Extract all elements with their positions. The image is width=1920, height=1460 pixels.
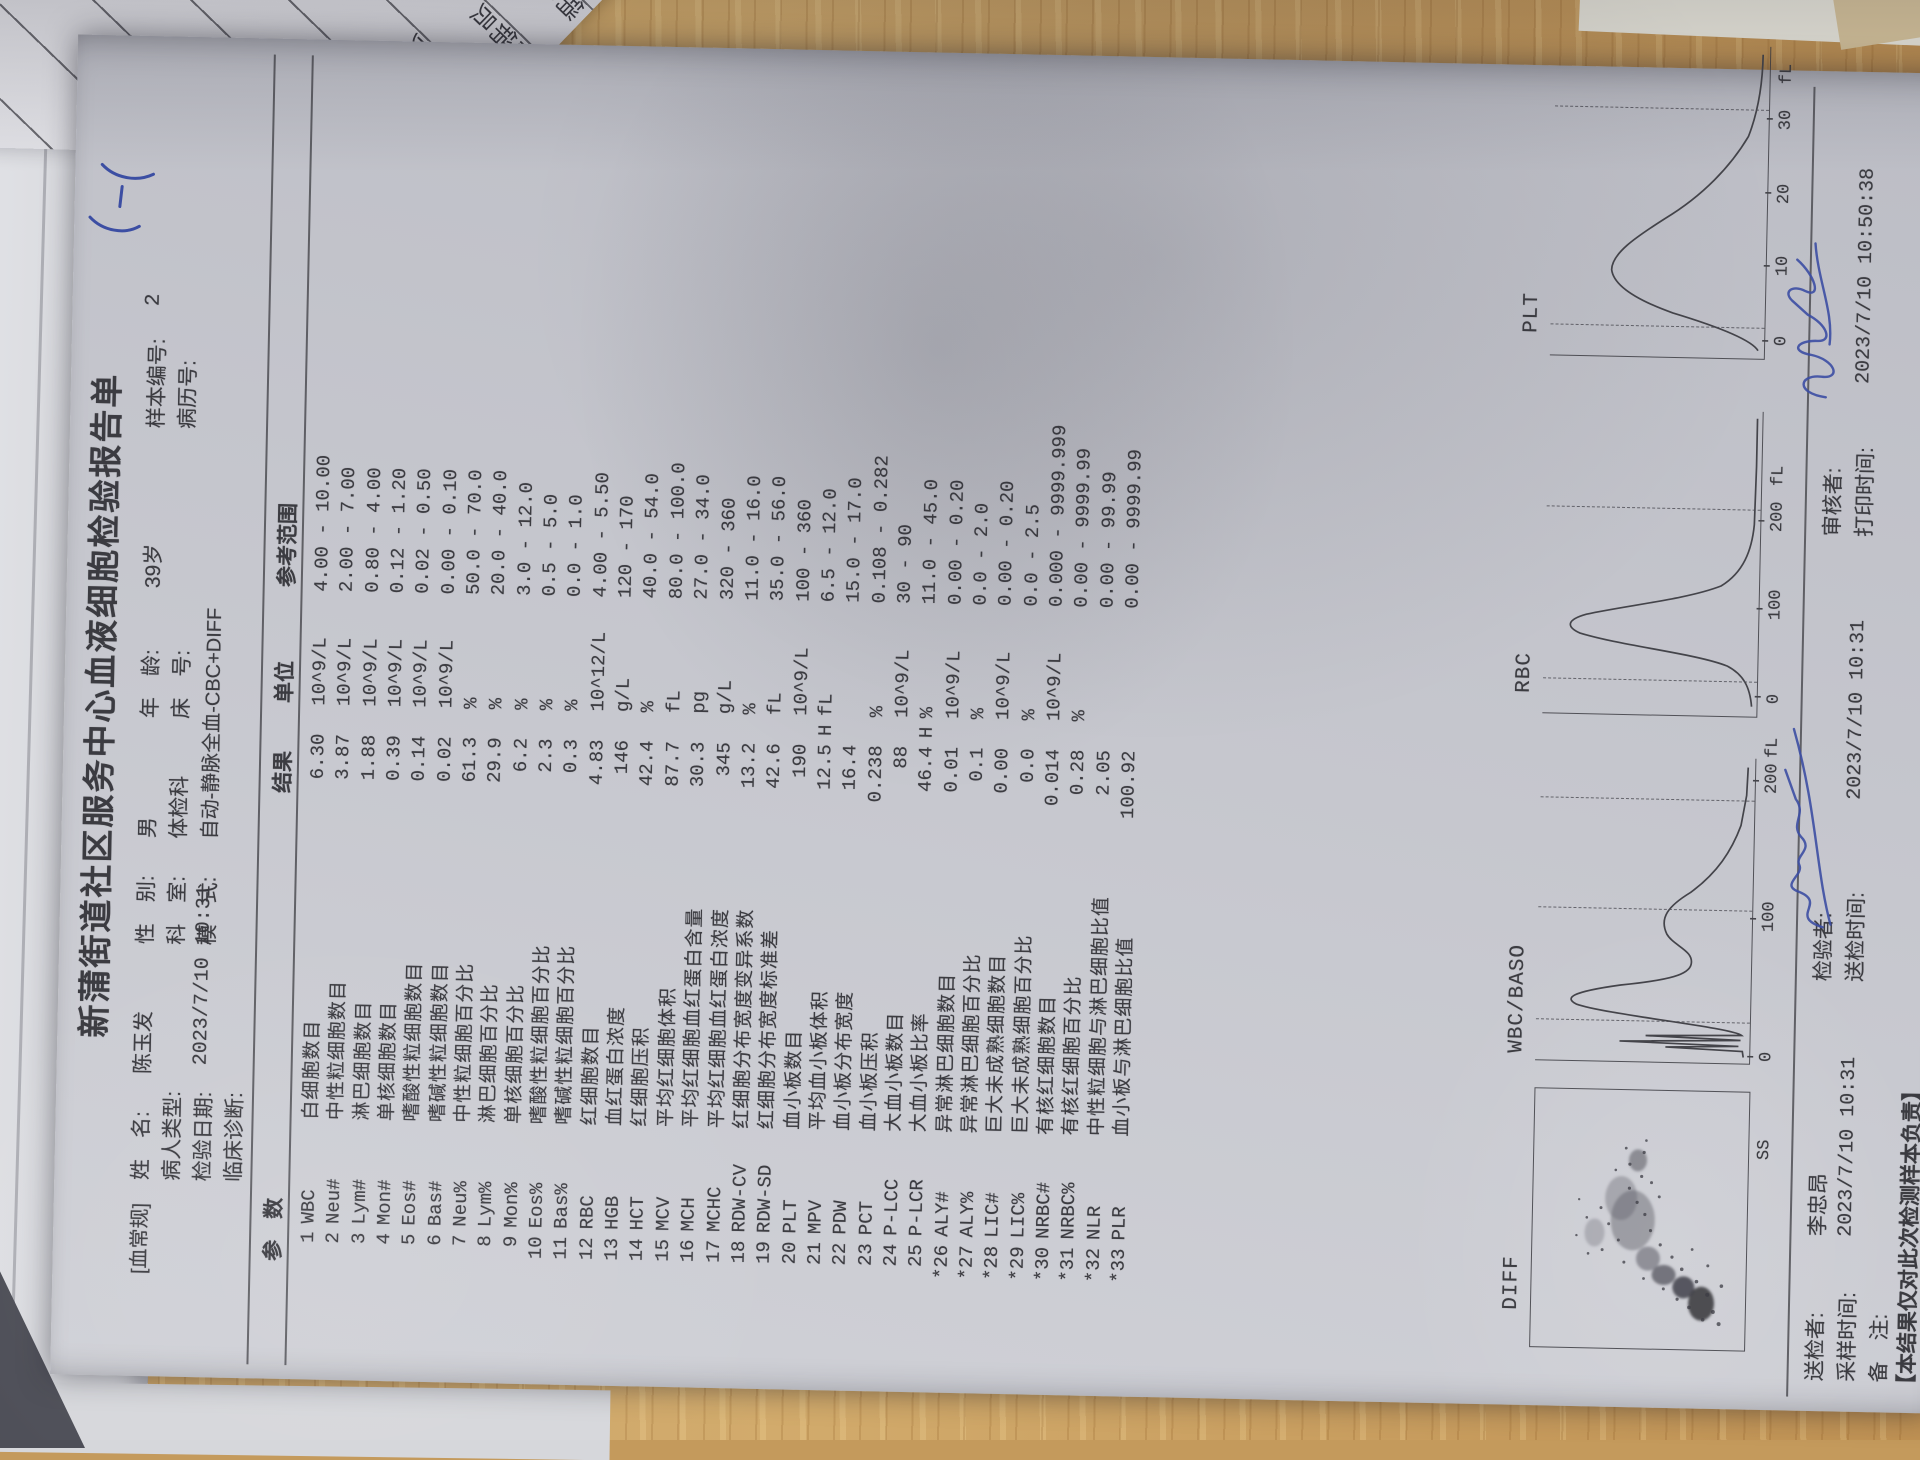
sender-label: 送检者:: [1798, 1312, 1829, 1381]
row-flag: [459, 709, 485, 738]
row-unit: g/L: [713, 600, 741, 715]
plt-histogram: [1550, 42, 1772, 359]
row-result: 16.4: [837, 745, 864, 846]
row-unit: g/L: [611, 598, 639, 713]
row-number: 11: [547, 1237, 575, 1385]
row-result: 0.00: [989, 748, 1016, 849]
row-result: 42.6: [761, 743, 788, 844]
category-tag: [血常规]: [122, 1203, 152, 1275]
axis-tick: 20: [1775, 184, 1794, 205]
row-unit: %: [865, 603, 893, 718]
name-value: 陈玉发: [126, 1011, 157, 1075]
row-flag: [1067, 721, 1093, 750]
row-flag: [712, 714, 738, 743]
row-code: PCT: [854, 1131, 882, 1244]
row-number: 25: [901, 1244, 929, 1392]
row-flag: [535, 710, 561, 739]
row-result: 6.30: [305, 733, 332, 834]
row-result: 46.4: [913, 746, 940, 847]
row-flag: [1092, 722, 1118, 751]
col-header-result: 结果: [266, 751, 297, 794]
row-unit: %: [459, 595, 487, 710]
rbc-plot-label: RBC: [1513, 652, 1537, 693]
dept-label: 科 室:: [160, 876, 191, 945]
reviewer-signature: [1768, 228, 1849, 414]
lab-report-paper: 新蒲街道社区服务中心血液细胞检验报告单 [血常规] 姓 名: 陈玉发 性 别: …: [62, 50, 1920, 1398]
row-unit: fL: [763, 601, 791, 716]
row-unit: %: [637, 598, 665, 713]
row-number: 8: [470, 1235, 498, 1383]
row-code: Lym#: [347, 1120, 375, 1233]
row-result: 3.87: [330, 734, 357, 835]
row-flag: [433, 708, 459, 737]
row-number: 7: [445, 1234, 473, 1382]
row-code: Neu#: [322, 1120, 350, 1233]
row-flag: [307, 705, 333, 734]
age-label: 年 龄:: [134, 649, 165, 718]
row-flag: H: [915, 718, 941, 747]
rule-under-header: [246, 55, 275, 1365]
row-result: 42.4: [634, 740, 661, 841]
row-unit: fL: [662, 599, 690, 714]
row-code: HGB: [600, 1126, 628, 1239]
row-unit: pg: [687, 599, 715, 714]
row-flag: [965, 719, 991, 748]
row-result: 88: [887, 746, 914, 847]
row-result: 30.3: [685, 741, 712, 842]
row-code: NLR: [1082, 1136, 1110, 1249]
row-number: 22: [825, 1242, 853, 1390]
row-result: 0.28: [1065, 749, 1092, 850]
mode-value: 自动-静脉全血-CBC+DIFF: [193, 607, 227, 839]
row-number: 12: [572, 1237, 600, 1385]
row-number: *27: [952, 1245, 980, 1393]
row-number: 2: [318, 1232, 346, 1380]
row-code: RDW-SD: [752, 1129, 780, 1242]
diff-plot-label: DIFF: [1500, 1255, 1524, 1310]
row-code: P-LCR: [904, 1132, 932, 1245]
row-result: 61.3: [457, 737, 484, 838]
row-unit: 10^9/L: [333, 592, 361, 707]
col-header-unit: 单位: [268, 661, 299, 704]
row-flag: [484, 709, 510, 738]
row-result: 0.02: [431, 736, 458, 837]
row-name: 血小板与淋巴细胞比值: [1109, 850, 1140, 1136]
row-number: 9: [496, 1236, 524, 1384]
dept-value: 体检科: [162, 775, 193, 839]
paper-crease: [8, 149, 47, 1449]
row-unit: fL: [814, 602, 842, 717]
row-flag: [585, 711, 611, 740]
row-code: Eos%: [524, 1124, 552, 1237]
row-unit: 10^9/L: [383, 593, 411, 708]
results-table: 1 WBC 白细胞数目 6.30 10^9/L 4.00 - 10.00 2 N…: [293, 40, 1157, 1397]
case-no-label: 病历号:: [171, 360, 202, 429]
row-unit: 10^9/L: [358, 592, 386, 707]
row-number: 1: [293, 1231, 321, 1379]
row-unit: 10^9/L: [409, 594, 437, 709]
row-flag: [357, 706, 383, 735]
axis-tick: 0: [1757, 1052, 1776, 1063]
diagnosis-label: 临床诊断:: [217, 1092, 249, 1182]
col-header-range: 参考范围: [271, 503, 303, 588]
send-time-label: 送检时间:: [1839, 892, 1871, 982]
row-code: Eos#: [398, 1121, 426, 1234]
mode-label: 模 式:: [191, 876, 222, 945]
row-result: 0.238: [862, 745, 889, 846]
row-unit: %: [485, 595, 513, 710]
plt-curve: [1550, 42, 1770, 358]
sender-value: 李忠昂: [1801, 1173, 1832, 1237]
row-code: PDW: [828, 1130, 856, 1243]
bed-label: 床 号:: [165, 650, 196, 719]
print-time-value: 2023/7/10 10:50:38: [1852, 168, 1880, 384]
row-result: 0.1: [963, 747, 990, 848]
row-flag: [889, 718, 915, 747]
row-number: 20: [775, 1241, 803, 1389]
axis-tick: 0: [1765, 694, 1784, 705]
row-result: 345: [710, 742, 737, 843]
row-result: 0.014: [1039, 749, 1066, 850]
row-code: ALY%: [955, 1133, 983, 1246]
row-flag: [661, 713, 687, 742]
row-flag: [560, 711, 586, 740]
row-flag: [383, 707, 409, 736]
row-code: LIC%: [1006, 1134, 1034, 1247]
row-flag: [864, 717, 890, 746]
note-label: 备 注:: [1862, 1313, 1893, 1382]
diff-x-axis-label: SS: [1755, 1139, 1774, 1160]
row-code: MCH: [676, 1127, 704, 1240]
lab-report-document: 新蒲街道社区服务中心血液细胞检验报告单 [血常规] 姓 名: 陈玉发 性 别: …: [50, 34, 1920, 1413]
row-unit: 10^12/L: [586, 597, 614, 712]
row-flag: [763, 715, 789, 744]
row-code: Mon#: [372, 1121, 400, 1234]
row-unit: %: [535, 596, 563, 711]
row-result: 2.05: [1090, 750, 1117, 851]
row-number: 24: [876, 1243, 904, 1391]
row-code: Bas#: [423, 1122, 451, 1235]
row-number: 3: [344, 1232, 372, 1380]
row-number: *31: [1053, 1247, 1081, 1395]
row-unit: [1093, 608, 1121, 723]
row-unit: %: [510, 596, 538, 711]
axis-tick: 30: [1777, 110, 1796, 131]
diff-scatter-dots: [1530, 1088, 1747, 1350]
wbc-baso-histogram: [1535, 754, 1756, 1064]
row-flag: H: [813, 716, 839, 745]
row-result: 1.88: [355, 734, 382, 835]
row-unit: 10^9/L: [890, 604, 918, 719]
row-code: MCV: [651, 1127, 679, 1240]
row-number: 13: [597, 1238, 625, 1386]
row-number: 21: [800, 1242, 828, 1390]
row-number: *28: [977, 1246, 1005, 1394]
row-flag: [788, 715, 814, 744]
col-header-param: 参 数: [257, 1197, 288, 1261]
row-unit: 10^9/L: [991, 606, 1019, 721]
row-code: ALY#: [930, 1133, 958, 1246]
row-number: 17: [699, 1240, 727, 1388]
row-code: MPV: [803, 1130, 831, 1243]
row-result: 13.2: [735, 742, 762, 843]
patient-type-label: 病人类型:: [155, 1091, 187, 1181]
row-result: 100.92: [1115, 750, 1142, 851]
row-number: *29: [1003, 1246, 1031, 1394]
axis-tick: 200: [1768, 501, 1788, 532]
row-number: *33: [1104, 1248, 1132, 1396]
row-flag: [737, 714, 763, 743]
row-code: PLT: [778, 1129, 806, 1242]
row-result: 4.83: [583, 739, 610, 840]
row-flag: [332, 706, 358, 735]
diff-scattergram: [1529, 1087, 1750, 1351]
print-time-label: 打印时间:: [1848, 447, 1880, 537]
row-unit: %: [1017, 606, 1045, 721]
axis-unit: fL: [1769, 466, 1788, 487]
row-result: 0.39: [381, 735, 408, 836]
row-result: 2.3: [533, 738, 560, 839]
row-flag: [991, 720, 1017, 749]
row-code: PLR: [1107, 1136, 1135, 1249]
row-unit: %: [966, 605, 994, 720]
row-result: 87.7: [659, 741, 686, 842]
row-unit: 10^9/L: [941, 605, 969, 720]
row-unit: [1118, 608, 1146, 723]
row-code: HCT: [626, 1126, 654, 1239]
name-label: 姓 名:: [124, 1111, 155, 1180]
row-result: 12.5: [811, 744, 838, 845]
axis-tick: 100: [1766, 589, 1786, 620]
row-flag: [687, 713, 713, 742]
row-result: 6.2: [507, 738, 534, 839]
sample-no-value: 2: [143, 293, 166, 306]
row-number: 14: [623, 1238, 651, 1386]
row-flag: [636, 712, 662, 741]
row-unit: %: [738, 600, 766, 715]
row-unit: %: [915, 604, 943, 719]
row-unit: 10^9/L: [789, 602, 817, 717]
sample-time-label: 采样时间:: [1830, 1292, 1862, 1382]
row-result: 29.9: [482, 737, 509, 838]
row-number: 5: [394, 1233, 422, 1381]
row-unit: %: [561, 597, 589, 712]
rbc-curve: [1542, 407, 1762, 716]
test-date-label: 检验日期:: [186, 1091, 218, 1181]
row-flag: [940, 719, 966, 748]
row-flag: [1041, 721, 1067, 750]
rbc-histogram: [1542, 407, 1763, 717]
row-flag: [611, 712, 637, 741]
row-code: RBC: [575, 1125, 603, 1238]
row-number: 15: [648, 1239, 676, 1387]
sex-label: 性 别:: [129, 875, 160, 944]
age-value: 39岁: [137, 543, 168, 588]
row-code: RDW-CV: [727, 1128, 755, 1241]
row-code: WBC: [296, 1119, 324, 1232]
row-number: *32: [1079, 1248, 1107, 1396]
row-flag: [839, 717, 865, 746]
row-unit: 10^9/L: [434, 594, 462, 709]
row-number: 4: [369, 1233, 397, 1381]
row-number: 19: [749, 1241, 777, 1389]
row-code: P-LCC: [879, 1132, 907, 1245]
row-number: 18: [724, 1240, 752, 1388]
row-number: 10: [521, 1236, 549, 1384]
row-code: Neu%: [448, 1122, 476, 1235]
axis-unit: fL: [1778, 64, 1797, 85]
row-code: LIC#: [980, 1134, 1008, 1247]
row-unit: %: [1067, 607, 1095, 722]
row-result: 0.3: [558, 739, 585, 840]
row-number: 6: [420, 1234, 448, 1382]
row-flag: [509, 710, 535, 739]
row-number: *30: [1028, 1247, 1056, 1395]
row-flag: [1117, 722, 1143, 751]
row-flag: [1016, 720, 1042, 749]
row-number: *26: [927, 1245, 955, 1393]
row-unit: [839, 603, 867, 718]
send-time-value: 2023/7/10 10:31: [1844, 620, 1871, 800]
row-code: MCHC: [702, 1128, 730, 1241]
row-code: Lym%: [474, 1123, 502, 1236]
row-unit: 10^9/L: [1042, 607, 1070, 722]
row-result: 0.01: [938, 747, 965, 848]
row-result: 190: [786, 743, 813, 844]
reviewer-label: 审核者:: [1816, 467, 1847, 536]
sample-no-label: 样本编号:: [140, 338, 172, 428]
row-code: Mon%: [499, 1124, 527, 1237]
row-unit: 10^9/L: [307, 591, 335, 706]
plt-plot-label: PLT: [1520, 292, 1544, 333]
row-code: NRBC#: [1031, 1135, 1059, 1248]
row-result: 146: [609, 740, 636, 841]
row-code: NRBC%: [1056, 1135, 1084, 1248]
row-number: 23: [851, 1243, 879, 1391]
row-number: 16: [673, 1239, 701, 1387]
sex-value: 男: [131, 817, 161, 839]
wbc-baso-plot-label: WBC/BASO: [1505, 944, 1530, 1053]
row-result: 0.0: [1014, 748, 1041, 849]
disclaimer: 【本结果仅对此次检测样本负责】: [1890, 1080, 1920, 1396]
row-result: 0.14: [406, 736, 433, 837]
row-code: Bas%: [550, 1125, 578, 1238]
row-flag: [408, 708, 434, 737]
sample-time-value: 2023/7/10 10:31: [1834, 1057, 1861, 1237]
